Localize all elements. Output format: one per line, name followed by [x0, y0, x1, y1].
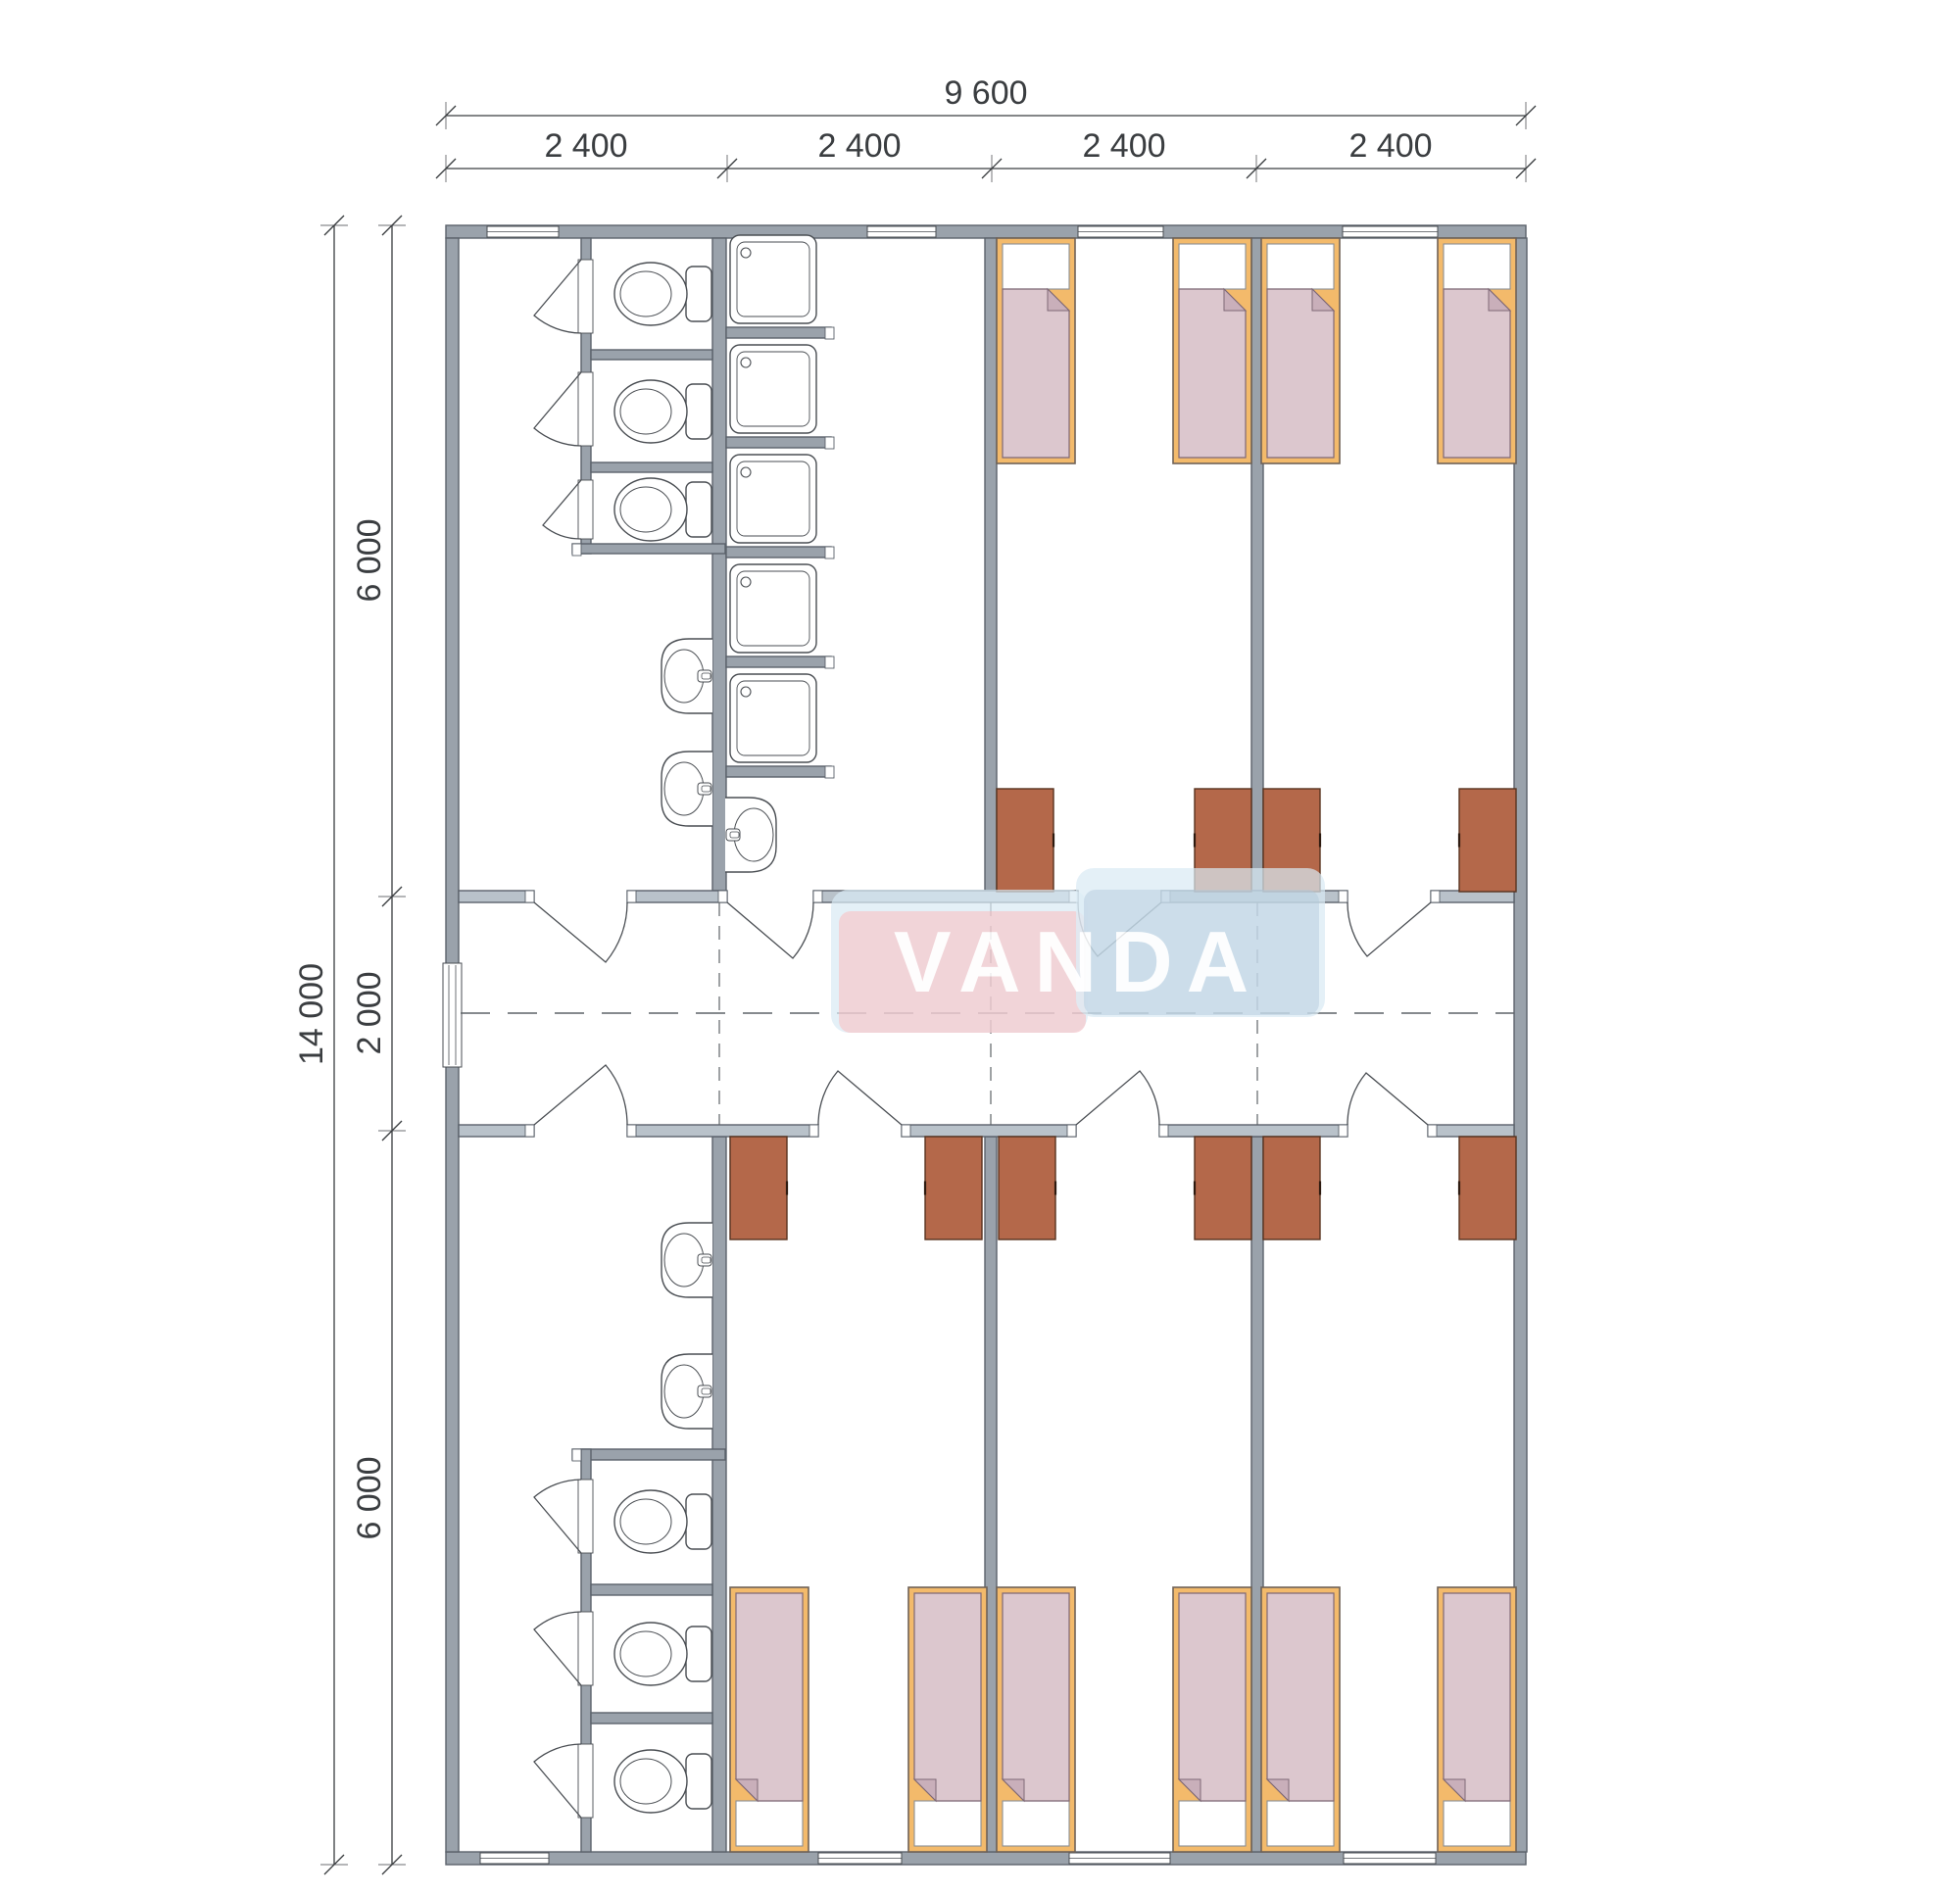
- shower-drain: [741, 358, 751, 367]
- stall-door-opening: [578, 260, 593, 333]
- stall-door-opening: [578, 1480, 593, 1553]
- wc-stall-divider: [591, 1713, 712, 1724]
- desk: [999, 1137, 1055, 1239]
- toilet-tank: [686, 384, 711, 439]
- shower-stub-wall: [726, 437, 831, 448]
- bed-blanket: [1003, 289, 1069, 458]
- desk-top: [1263, 1137, 1320, 1239]
- desk-top: [1195, 1137, 1251, 1239]
- sink-tap-spout: [702, 1388, 710, 1394]
- sink: [725, 798, 776, 872]
- bed: [730, 1587, 808, 1852]
- shower-drain: [741, 687, 751, 697]
- outer-wall-left-upper: [446, 238, 459, 965]
- door-jamb-cap: [1431, 891, 1440, 902]
- toilet: [614, 380, 711, 443]
- stall-door-opening: [578, 1612, 593, 1685]
- floor-plan-page: 9 6002 4002 4002 4002 40014 0006 0002 00…: [0, 0, 1960, 1894]
- dimension-label: 2 400: [544, 127, 627, 165]
- door-room-bottom-3: [1076, 1071, 1159, 1125]
- door-jamb-cap: [825, 766, 834, 778]
- sink-tap-spout: [702, 1257, 710, 1263]
- wc-stall-divider: [591, 350, 712, 360]
- room-divider-top-1: [985, 238, 997, 891]
- bed-pillow: [1179, 244, 1246, 289]
- toilet: [614, 1490, 711, 1553]
- door-jamb-cap: [1159, 1125, 1168, 1137]
- toilet: [614, 478, 711, 541]
- desk: [1195, 1137, 1251, 1239]
- door-wc-stall: [534, 1480, 581, 1553]
- corridor-wall: [459, 891, 534, 902]
- door-room-bottom-1: [534, 1065, 627, 1125]
- wc-stall-divider: [591, 462, 712, 472]
- bed-pillow: [1179, 1801, 1246, 1846]
- door-room-bottom-2: [818, 1071, 902, 1125]
- toilet: [614, 1623, 711, 1685]
- door-jamb-cap: [627, 1125, 636, 1137]
- shower-tray: [730, 235, 816, 323]
- bed: [908, 1587, 987, 1852]
- outer-wall-left-lower: [446, 1065, 459, 1852]
- bed-blanket: [1003, 1593, 1069, 1801]
- bed-blanket: [1267, 1593, 1334, 1801]
- desk: [925, 1137, 982, 1239]
- door-room-top-4: [1347, 902, 1431, 956]
- shower-drain: [741, 248, 751, 258]
- corridor-wall: [627, 1125, 818, 1137]
- door-jamb-cap: [902, 1125, 910, 1137]
- dimension-label: 9 600: [944, 74, 1027, 112]
- wc-stall-divider: [591, 1584, 712, 1595]
- watermark-text: VANDA: [894, 913, 1262, 1010]
- stall-door-opening: [578, 480, 593, 539]
- bed-blanket: [914, 1593, 981, 1801]
- corridor-wall: [1431, 891, 1514, 902]
- door-jamb-cap: [572, 1449, 581, 1461]
- door-jamb-cap: [825, 547, 834, 558]
- furniture-layer: [730, 238, 1516, 1852]
- stall-door-opening: [578, 372, 593, 446]
- wet-wall-top: [712, 238, 726, 891]
- desk: [1263, 1137, 1320, 1239]
- bed: [997, 1587, 1075, 1852]
- door-jamb-cap: [627, 891, 636, 902]
- bed: [1261, 238, 1340, 463]
- door-jamb-cap: [813, 891, 822, 902]
- desk-top: [925, 1137, 982, 1239]
- dimension-label: 2 000: [351, 971, 388, 1054]
- door-room-top-2: [727, 902, 813, 958]
- bed: [1438, 238, 1516, 463]
- corridor-wall: [1428, 1125, 1514, 1137]
- bed-blanket: [736, 1593, 803, 1801]
- corridor-wall: [627, 891, 727, 902]
- wet-wall-bottom: [712, 1137, 726, 1852]
- toilet-tank: [686, 267, 711, 321]
- stall-door-opening: [578, 1744, 593, 1818]
- wc-stall-end-wall: [572, 1449, 725, 1460]
- shower-stub-wall: [726, 656, 831, 667]
- sink: [661, 752, 712, 826]
- bed-blanket: [1444, 289, 1510, 458]
- dimension-label: 2 400: [1348, 127, 1432, 165]
- bed: [1173, 238, 1251, 463]
- bed-pillow: [1267, 244, 1334, 289]
- door-wc-stall: [534, 260, 581, 333]
- door-room-top-1: [534, 902, 627, 962]
- shower-stub-wall: [726, 327, 831, 338]
- sink-tap-spout: [702, 673, 710, 679]
- toilet: [614, 263, 711, 325]
- desk: [730, 1137, 787, 1239]
- door-jamb-cap: [1067, 1125, 1076, 1137]
- desk-top: [1459, 1137, 1516, 1239]
- toilet-tank: [686, 1754, 711, 1809]
- bed-pillow: [914, 1801, 981, 1846]
- entrance-door: [443, 963, 462, 1067]
- door-jamb-cap: [1428, 1125, 1437, 1137]
- dimension-label: 2 400: [817, 127, 901, 165]
- bed-blanket: [1179, 1593, 1246, 1801]
- desk-top: [730, 1137, 787, 1239]
- door-room-bottom-4: [1347, 1073, 1428, 1125]
- bed: [997, 238, 1075, 463]
- door-jamb-cap: [718, 891, 727, 902]
- bed-pillow: [1444, 244, 1510, 289]
- door-jamb-cap: [825, 656, 834, 668]
- door-jamb-cap: [809, 1125, 818, 1137]
- bed-pillow: [1003, 1801, 1069, 1846]
- sink: [661, 1223, 712, 1297]
- corridor-wall: [459, 1125, 534, 1137]
- door-jamb-cap: [1339, 1125, 1347, 1137]
- bed: [1261, 1587, 1340, 1852]
- dimension-label: 14 000: [293, 963, 330, 1065]
- bed: [1173, 1587, 1251, 1852]
- bed-blanket: [1444, 1593, 1510, 1801]
- door-jamb-cap: [825, 437, 834, 449]
- desk-top: [999, 1137, 1055, 1239]
- door-jamb-cap: [1339, 891, 1347, 902]
- toilet-tank: [686, 1627, 711, 1681]
- door-jamb-cap: [572, 544, 581, 556]
- bed-blanket: [1179, 289, 1246, 458]
- bed-pillow: [736, 1801, 803, 1846]
- dimension-label: 6 000: [351, 518, 388, 602]
- corridor-wall: [902, 1125, 1076, 1137]
- dimension-label: 6 000: [351, 1456, 388, 1539]
- shower-tray: [730, 564, 816, 653]
- door-jamb-cap: [525, 891, 534, 902]
- shower-drain: [741, 467, 751, 477]
- corridor-wall: [1159, 1125, 1347, 1137]
- toilet-tank: [686, 1494, 711, 1549]
- sink: [661, 1354, 712, 1429]
- desk: [1459, 789, 1516, 892]
- bed-pillow: [1444, 1801, 1510, 1846]
- floor-plan-drawing: 9 6002 4002 4002 4002 40014 0006 0002 00…: [0, 0, 1960, 1894]
- dimension-label: 2 400: [1082, 127, 1165, 165]
- bed-blanket: [1267, 289, 1334, 458]
- watermark: VANDA: [831, 868, 1325, 1033]
- desk: [997, 789, 1053, 892]
- shower-stub-wall: [726, 547, 831, 558]
- bed-pillow: [1267, 1801, 1334, 1846]
- toilet: [614, 1750, 711, 1813]
- shower-tray: [730, 345, 816, 433]
- door-wc-stall: [534, 1612, 581, 1685]
- shower-tray: [730, 455, 816, 543]
- sink: [661, 639, 712, 713]
- desk-top: [1459, 789, 1516, 892]
- door-wc-stall: [543, 480, 581, 539]
- door-jamb-cap: [525, 1125, 534, 1137]
- sink-tap-spout: [730, 832, 739, 838]
- toilet-tank: [686, 482, 711, 537]
- desk: [1459, 1137, 1516, 1239]
- sink-tap-spout: [702, 786, 710, 792]
- shower-stub-wall: [726, 766, 831, 777]
- door-jamb-cap: [825, 327, 834, 339]
- bed: [1438, 1587, 1516, 1852]
- shower-tray: [730, 674, 816, 762]
- wc-stall-end-wall: [572, 544, 725, 554]
- door-wc-stall: [534, 1744, 581, 1818]
- door-wc-stall: [534, 372, 581, 446]
- shower-drain: [741, 577, 751, 587]
- desk-top: [997, 789, 1053, 892]
- bed-pillow: [1003, 244, 1069, 289]
